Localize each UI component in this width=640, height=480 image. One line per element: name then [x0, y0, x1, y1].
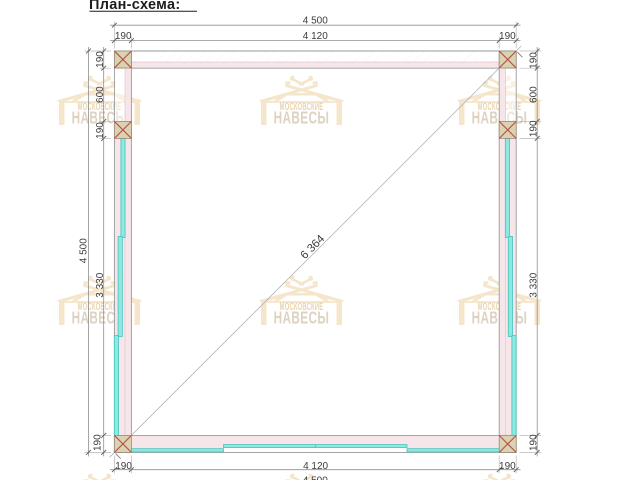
svg-text:4 120: 4 120: [303, 31, 328, 42]
svg-text:4 500: 4 500: [303, 476, 328, 480]
svg-text:4 500: 4 500: [79, 238, 90, 263]
svg-text:190: 190: [95, 122, 106, 139]
svg-text:3 330: 3 330: [95, 272, 106, 297]
svg-text:4 120: 4 120: [303, 461, 328, 472]
svg-text:6 364: 6 364: [298, 233, 327, 262]
svg-text:600: 600: [95, 86, 106, 103]
svg-text:190: 190: [115, 31, 132, 42]
svg-text:190: 190: [115, 461, 132, 472]
svg-text:190: 190: [92, 434, 103, 451]
svg-text:190: 190: [499, 461, 516, 472]
svg-text:190: 190: [499, 31, 516, 42]
svg-text:600: 600: [529, 86, 540, 103]
svg-text:4 500: 4 500: [303, 15, 328, 26]
svg-text:190: 190: [529, 434, 540, 451]
svg-text:190: 190: [529, 120, 540, 137]
svg-text:190: 190: [529, 52, 540, 69]
svg-text:190: 190: [95, 51, 106, 68]
svg-text:3 330: 3 330: [529, 272, 540, 297]
